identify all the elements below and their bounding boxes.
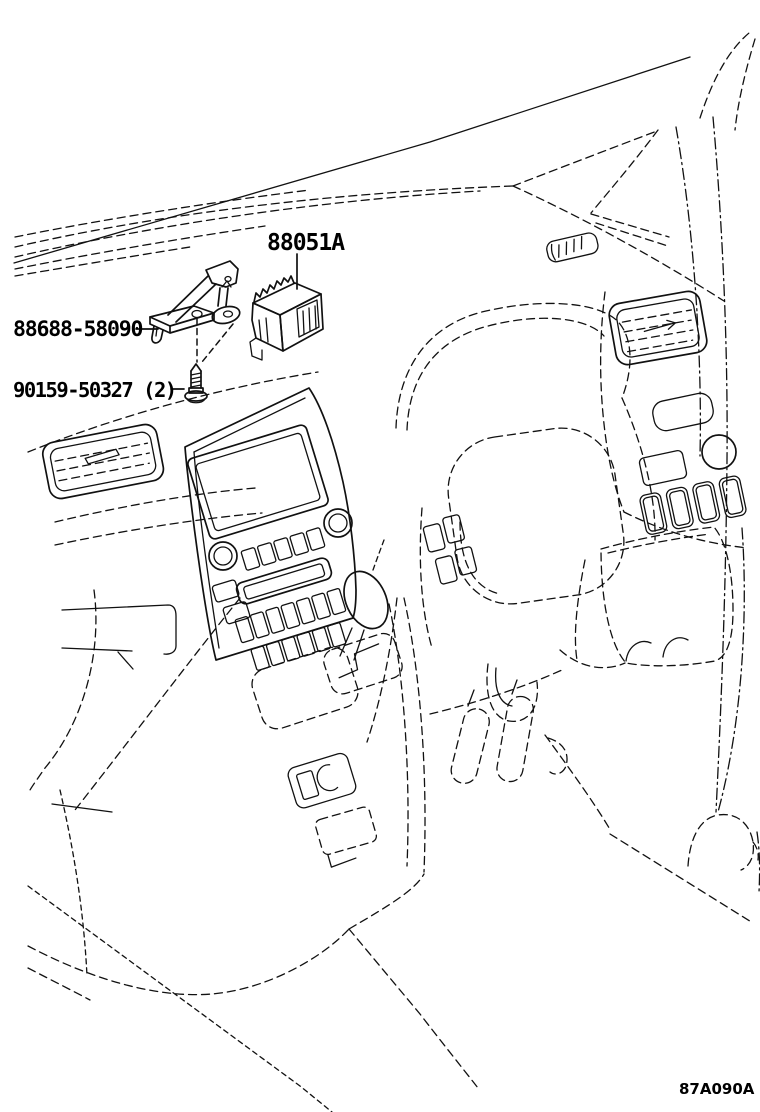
part-label-screw[interactable]: 90159-50327 (2): [13, 378, 176, 402]
dashboard-line-art: 88051A 88688-58090 90159-50327 (2) 87A09…: [0, 0, 760, 1112]
gear-shifter-console: [248, 540, 425, 929]
figure-code: 87A090A: [679, 1080, 755, 1098]
center-stack: [185, 388, 356, 671]
floor-and-door-lines: [28, 815, 760, 1112]
aux-panel-edge: [420, 508, 432, 648]
audio-knob-right: [324, 509, 352, 537]
right-knee-panel: [560, 527, 733, 668]
shift-knob: [336, 540, 397, 660]
button-row-1: [241, 527, 325, 570]
door-frame-lines: [591, 117, 744, 812]
power-outlet-panel: [286, 752, 358, 810]
ignition-knob: [702, 435, 736, 469]
driver-lower-dash-lines: [30, 488, 262, 976]
audio-knob-left: [209, 542, 237, 570]
assembly-dashed-lines: [197, 318, 233, 362]
switch-blank: [639, 450, 688, 487]
pedals: [430, 670, 611, 831]
tray-slot: [651, 391, 716, 433]
aux-switch-panel: [422, 513, 478, 585]
part-label-bracket[interactable]: 88688-58090: [13, 317, 142, 342]
button-row-3: [251, 622, 346, 670]
ecu-part-drawing: [250, 276, 323, 360]
nav-screen: [186, 424, 329, 541]
windshield-cowl-lines: [14, 57, 690, 276]
a-pillar-lines: [513, 33, 755, 456]
shift-gate: [321, 630, 406, 697]
instrument-hood: [396, 303, 655, 540]
left-air-vent: [41, 422, 166, 500]
part-label-ecu[interactable]: 88051A: [267, 230, 345, 256]
ashtray: [314, 806, 381, 869]
defroster-vent: [545, 231, 599, 263]
bracket-part-drawing: [150, 261, 242, 343]
side-buttons: [212, 578, 251, 625]
parts-diagram-page: 88051A 88688-58090 90159-50327 (2) 87A09…: [0, 0, 760, 1112]
cd-slot: [235, 556, 333, 605]
